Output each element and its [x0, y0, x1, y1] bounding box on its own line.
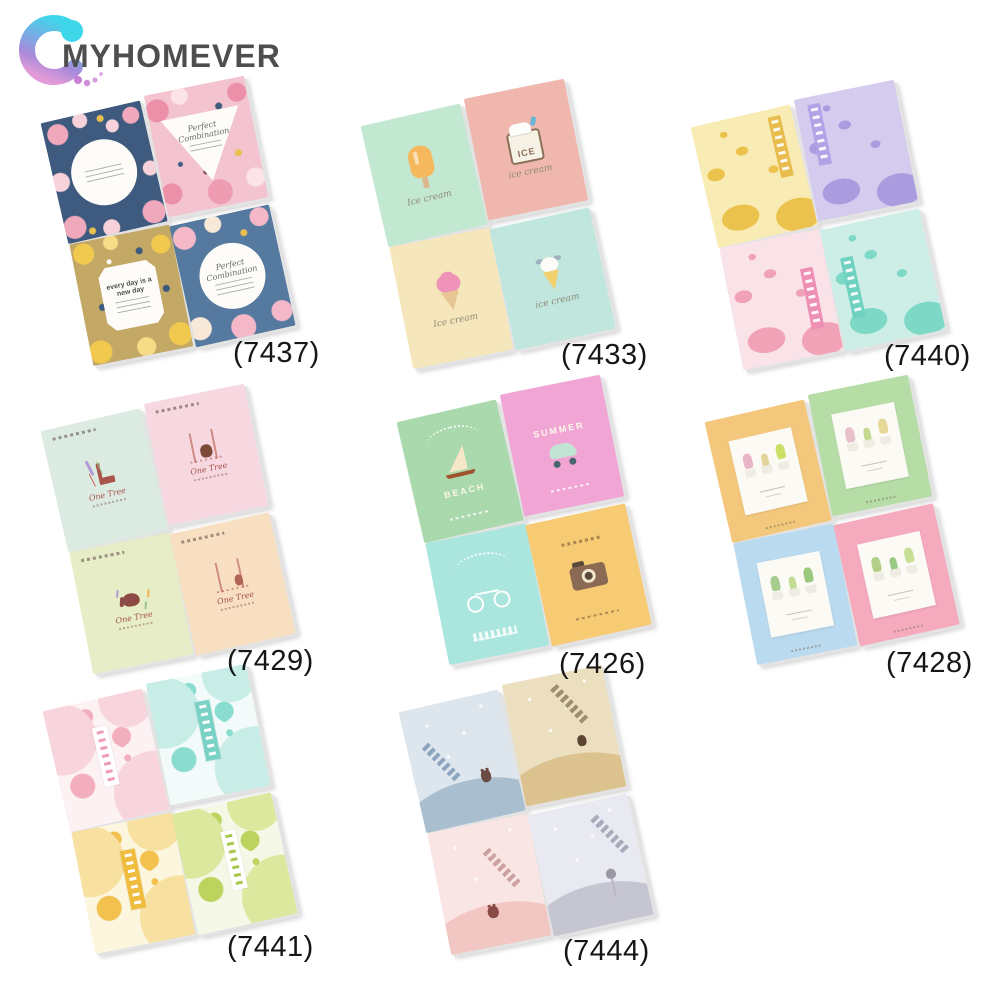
cover-caption: Ice cream — [433, 312, 480, 331]
product-code-label: (7433) — [561, 339, 648, 372]
product-group — [66, 684, 275, 937]
cover-caption: One Tree — [190, 461, 229, 481]
elephant-icon — [109, 577, 150, 613]
bird-icon — [576, 734, 587, 747]
notebook-grid: Perfect Combinationevery day is a new da… — [40, 77, 297, 368]
cover-caption: BEACH — [443, 481, 486, 501]
bear-trees-icon — [182, 427, 227, 464]
plants-icon — [857, 531, 936, 619]
bicycle-icon — [463, 580, 513, 614]
cover-label-triangle: Perfect Combination — [160, 105, 252, 188]
cover-script-lines — [116, 296, 152, 315]
notebook-cover: SUMMER — [500, 375, 624, 517]
product-code-label: (7444) — [563, 935, 650, 968]
notebook-grid: BEACHSUMMER — [396, 376, 653, 667]
rabbit-trees-icon — [208, 556, 254, 594]
product-group: Ice creamICEice creamIce creamice cream — [384, 99, 593, 352]
giraffe-icon — [81, 453, 123, 490]
cover-label-badge: every day is a new day — [97, 258, 166, 332]
cover-label-circle — [65, 133, 144, 212]
product-code-label: (7440) — [884, 340, 971, 373]
scooter-icon — [545, 439, 583, 469]
notebook-cover: ICEice cream — [464, 79, 588, 221]
sailboat-icon — [437, 443, 479, 482]
notebook-cover: Perfect Combination — [144, 76, 268, 218]
cover-caption: Ice cream — [406, 189, 453, 209]
plants-icon — [831, 402, 909, 489]
icon-text: ICE — [517, 146, 537, 159]
cover-caption: SUMMER — [532, 420, 585, 440]
product-group: Perfect Combinationevery day is a new da… — [64, 96, 273, 349]
popsicle-icon — [406, 144, 437, 181]
cover-script-lines — [84, 163, 124, 184]
softserve-icon — [431, 267, 469, 314]
product-group: BEACHSUMMER — [420, 395, 629, 648]
product-code-label: (7437) — [233, 337, 320, 370]
cat-icon — [480, 769, 492, 783]
cover-caption: ice cream — [508, 163, 554, 182]
cover-label-circle: Perfect Combination — [193, 237, 272, 316]
notebook-cover — [502, 665, 626, 807]
notebook-cover — [794, 80, 918, 222]
owl-icon — [605, 868, 617, 880]
camera-icon — [569, 561, 609, 591]
notebook-grid — [690, 81, 947, 372]
product-code-label: (7429) — [227, 645, 314, 678]
cover-caption: every day is a new day — [100, 275, 160, 302]
notebook-cover — [146, 664, 270, 806]
product-collage: MYHOMEVER Perfect Combinationevery day i… — [0, 0, 1001, 1001]
notebook-cover: One Tree — [144, 384, 268, 526]
product-code-label: (7426) — [559, 648, 646, 681]
plants-icon — [728, 427, 807, 515]
icebox-icon: ICE — [506, 128, 546, 166]
product-code-label: (7441) — [227, 931, 314, 964]
product-group: One TreeOne TreeOne TreeOne Tree — [64, 404, 273, 657]
cover-caption: One Tree — [216, 590, 256, 611]
brand-name: MYHOMEVER — [62, 38, 281, 75]
notebook-grid: Ice creamICEice creamIce creamice cream — [360, 80, 617, 371]
product-group — [714, 100, 923, 353]
notebook-grid — [704, 376, 961, 667]
cover-caption: One Tree — [88, 486, 128, 507]
product-group — [422, 685, 631, 938]
product-group — [728, 395, 937, 648]
notebook-grid — [42, 665, 299, 956]
notebook-grid — [398, 666, 655, 957]
product-code-label: (7428) — [886, 647, 973, 680]
notebook-grid: One TreeOne TreeOne TreeOne Tree — [40, 385, 297, 676]
notebook-cover — [808, 375, 932, 517]
bear-icon — [487, 905, 500, 919]
cone-ears-icon — [529, 247, 573, 296]
cover-caption: One Tree — [115, 610, 154, 630]
plants-icon — [757, 551, 835, 638]
brand-logo: MYHOMEVER — [14, 6, 334, 96]
